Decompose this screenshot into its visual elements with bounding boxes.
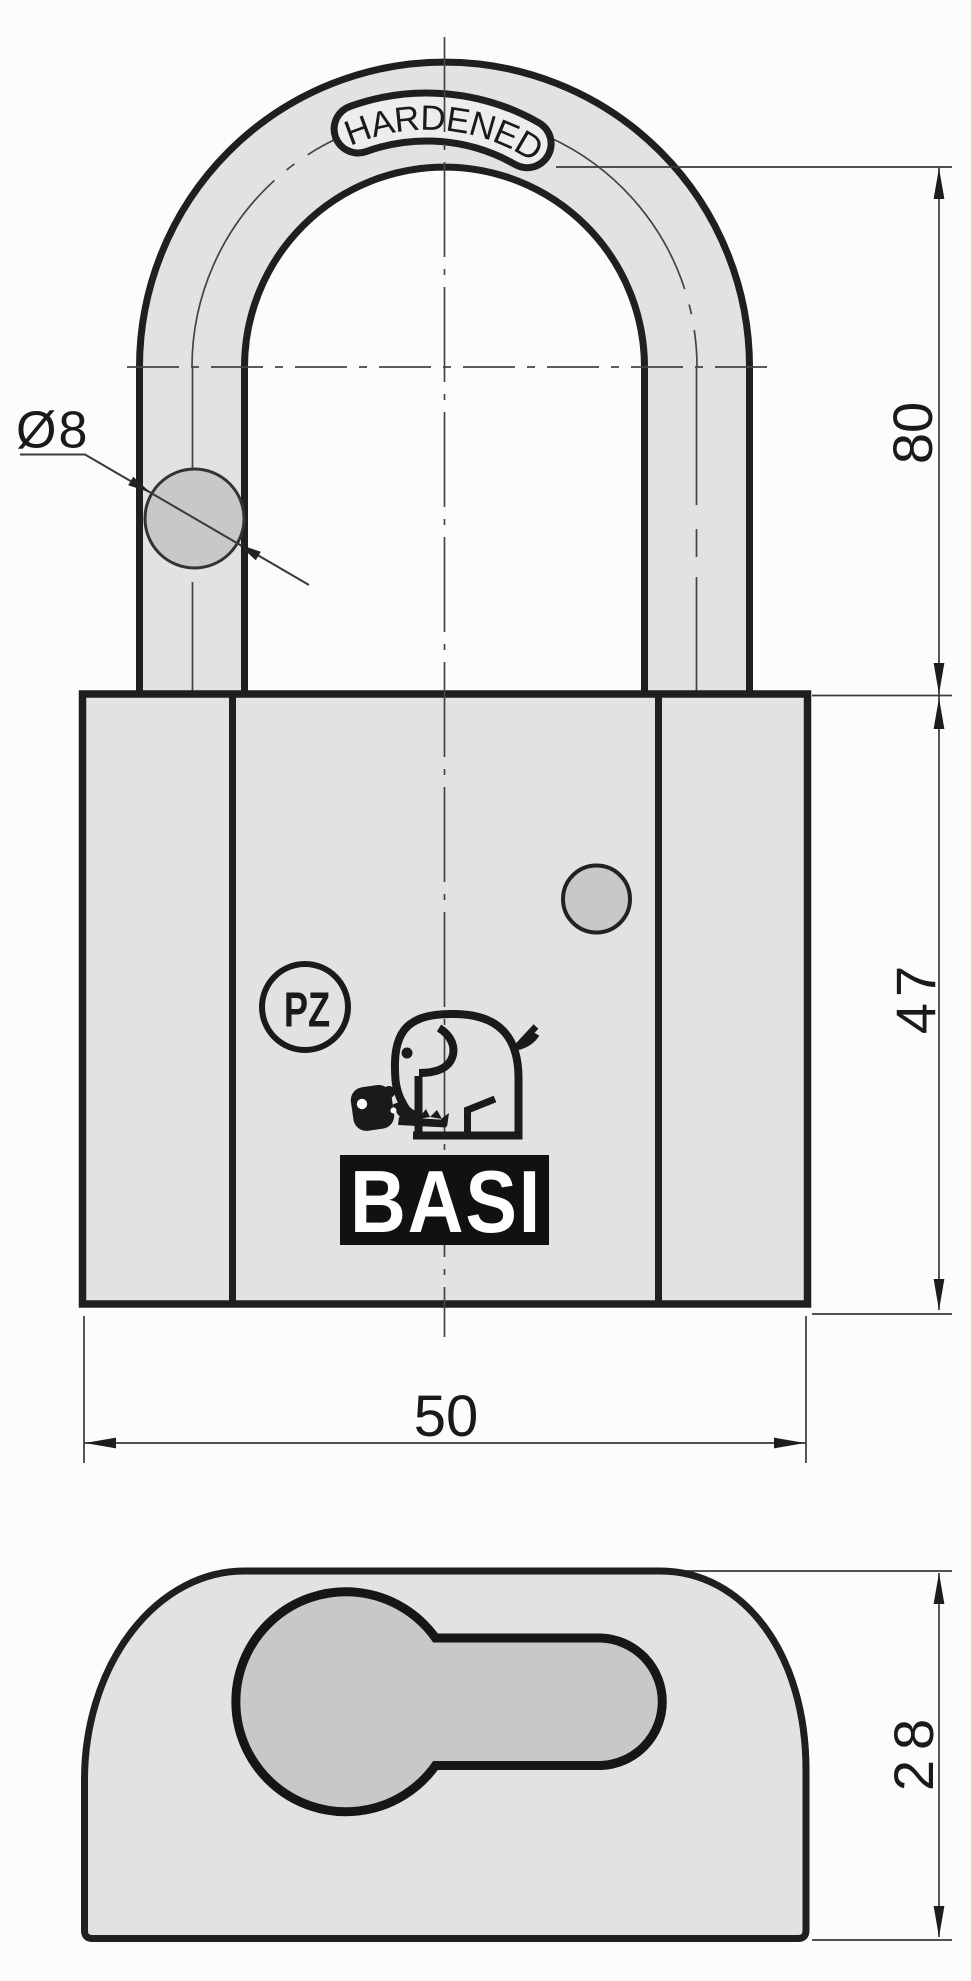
svg-text:28: 28 <box>882 1709 945 1791</box>
svg-text:BASI: BASI <box>350 1152 542 1251</box>
svg-text:47: 47 <box>884 960 947 1034</box>
svg-text:50: 50 <box>414 1384 479 1449</box>
svg-text:80: 80 <box>881 402 944 464</box>
svg-text:Ø8: Ø8 <box>16 402 89 460</box>
svg-text:PZ: PZ <box>284 983 330 1038</box>
